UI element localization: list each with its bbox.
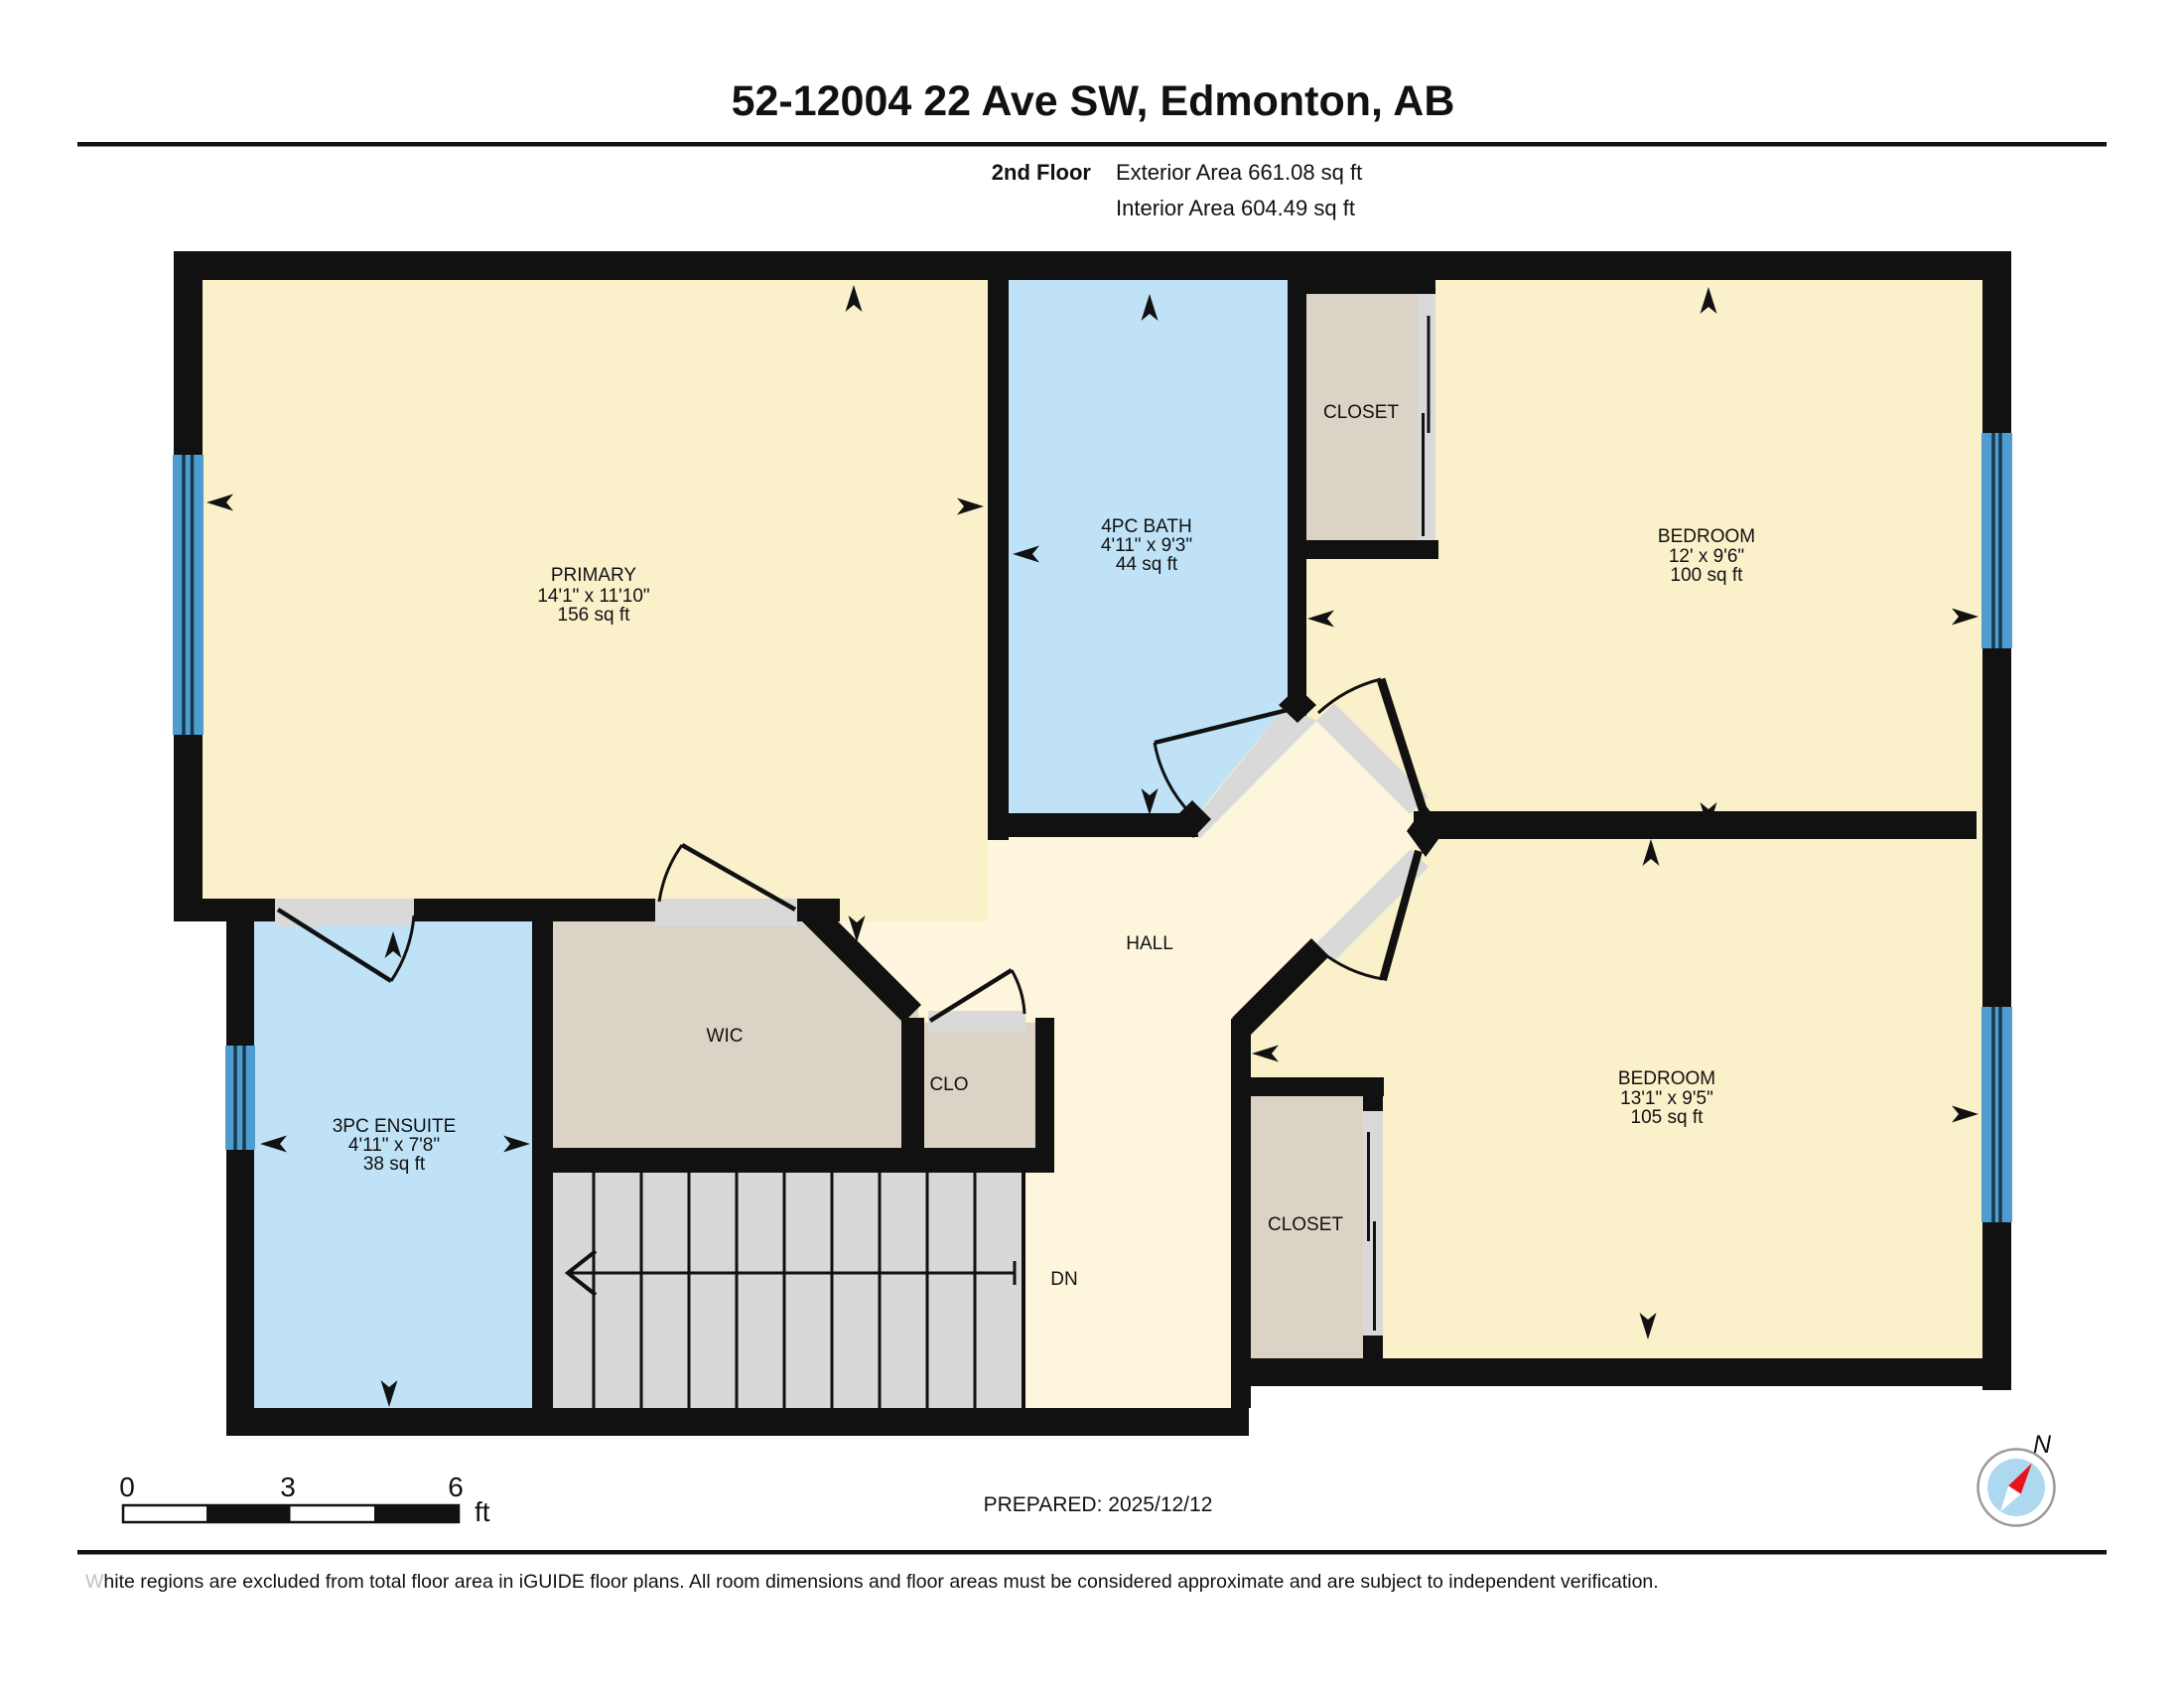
svg-text:13'1" x 9'5": 13'1" x 9'5" — [1620, 1088, 1713, 1109]
svg-text:CLOSET: CLOSET — [1268, 1214, 1343, 1235]
svg-text:52-12004 22 Ave SW, Edmonton,: 52-12004 22 Ave SW, Edmonton, AB — [732, 77, 1455, 125]
svg-text:3PC ENSUITE: 3PC ENSUITE — [333, 1116, 457, 1137]
svg-text:HALL: HALL — [1126, 933, 1173, 954]
svg-text:3: 3 — [280, 1472, 296, 1502]
svg-text:Exterior Area 661.08 sq ft: Exterior Area 661.08 sq ft — [1116, 160, 1362, 185]
svg-text:DN: DN — [1050, 1269, 1077, 1290]
svg-text:WIC: WIC — [707, 1026, 744, 1047]
svg-text:N: N — [2033, 1431, 2052, 1459]
svg-text:100 sq ft: 100 sq ft — [1671, 565, 1744, 586]
svg-text:44 sq ft: 44 sq ft — [1116, 554, 1178, 575]
svg-text:38 sq ft: 38 sq ft — [363, 1154, 426, 1175]
svg-text:4PC BATH: 4PC BATH — [1101, 516, 1192, 537]
svg-text:14'1" x 11'10": 14'1" x 11'10" — [537, 586, 649, 607]
svg-text:105 sq ft: 105 sq ft — [1631, 1107, 1705, 1128]
svg-text:White regions are excluded fro: White regions are excluded from total fl… — [85, 1571, 1659, 1593]
svg-text:156 sq ft: 156 sq ft — [558, 605, 631, 626]
svg-text:4'11" x 7'8": 4'11" x 7'8" — [348, 1135, 440, 1156]
svg-text:ft: ft — [475, 1496, 490, 1527]
svg-text:BEDROOM: BEDROOM — [1618, 1068, 1715, 1089]
svg-text:BEDROOM: BEDROOM — [1658, 526, 1755, 547]
svg-text:PRIMARY: PRIMARY — [551, 565, 637, 586]
svg-text:PREPARED: 2025/12/12: PREPARED: 2025/12/12 — [984, 1493, 1213, 1516]
svg-text:2nd Floor: 2nd Floor — [992, 160, 1092, 185]
svg-text:4'11" x 9'3": 4'11" x 9'3" — [1101, 535, 1192, 556]
svg-text:CLO: CLO — [929, 1074, 968, 1095]
svg-text:12' x 9'6": 12' x 9'6" — [1669, 546, 1744, 567]
svg-text:6: 6 — [448, 1472, 464, 1502]
svg-text:Interior Area 604.49 sq ft: Interior Area 604.49 sq ft — [1116, 196, 1355, 220]
svg-text:CLOSET: CLOSET — [1323, 402, 1399, 423]
svg-text:0: 0 — [119, 1472, 135, 1502]
